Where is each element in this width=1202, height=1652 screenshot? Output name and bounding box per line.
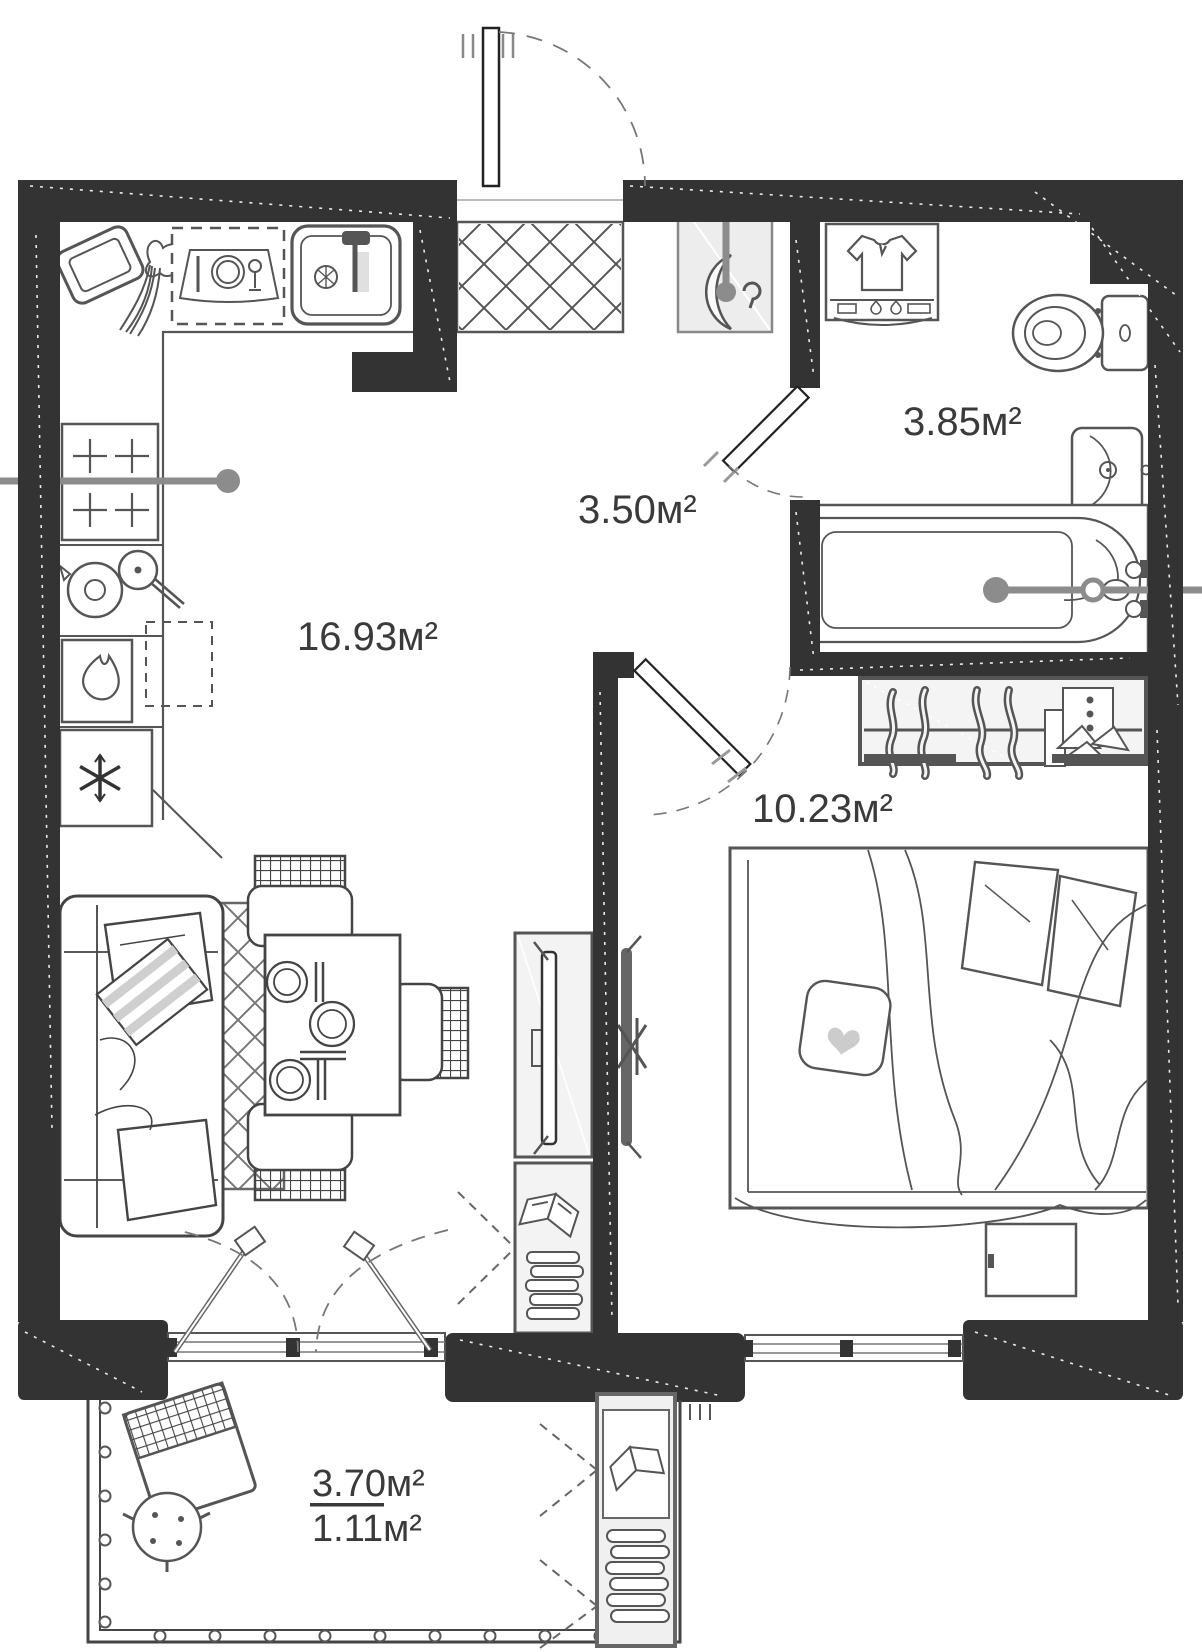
kitchen-cabinet-dashed bbox=[172, 228, 284, 324]
room-label-bathroom: 3.85м² bbox=[903, 400, 1022, 444]
sofa bbox=[60, 896, 223, 1236]
oven-icon bbox=[62, 640, 132, 722]
room-label-kitchen-living: 16.93м² bbox=[297, 615, 438, 659]
floor-plan-canvas: 16.93м² 3.50м² 3.85м² 10.23м² 3.70м² 1.1… bbox=[0, 0, 1202, 1652]
balcony-area-reduced: 1.11м² bbox=[312, 1508, 422, 1550]
fraction-line bbox=[310, 1503, 384, 1507]
bed bbox=[730, 848, 1148, 1227]
dining-table bbox=[265, 935, 400, 1115]
room-label-hallway: 3.50м² bbox=[578, 488, 697, 532]
sofa-pillow bbox=[118, 1120, 216, 1220]
balcony-cabinet bbox=[597, 1394, 675, 1646]
floor-plan-drawing: 16.93м² 3.50м² 3.85м² 10.23м² 3.70м² 1.1… bbox=[0, 0, 1202, 1652]
tv-icon bbox=[542, 952, 556, 1144]
bathroom-sink-icon bbox=[1072, 428, 1151, 514]
dining-chair-top bbox=[248, 856, 352, 946]
nightstand bbox=[986, 1224, 1076, 1296]
pillow bbox=[962, 862, 1058, 985]
living-room-window bbox=[163, 1333, 445, 1361]
bedroom-window bbox=[740, 1335, 963, 1361]
pillow bbox=[1048, 876, 1136, 1006]
kitchen-sink bbox=[292, 226, 400, 324]
book-stack-icon bbox=[526, 1252, 583, 1319]
tv-cabinet bbox=[515, 933, 592, 1157]
washing-machine-icon bbox=[826, 224, 938, 325]
bookshelf bbox=[515, 1163, 592, 1333]
dining-chair-right bbox=[390, 984, 468, 1080]
wardrobe bbox=[860, 678, 1146, 776]
entry-mat bbox=[457, 222, 623, 332]
faucet-icon bbox=[342, 231, 370, 245]
room-label-bedroom: 10.23м² bbox=[752, 787, 893, 831]
heart-pillow bbox=[797, 979, 892, 1078]
dining-chair-bottom bbox=[248, 1104, 352, 1200]
toilet-icon bbox=[1013, 295, 1148, 371]
balcony-area-total: 3.70м² bbox=[312, 1463, 425, 1505]
